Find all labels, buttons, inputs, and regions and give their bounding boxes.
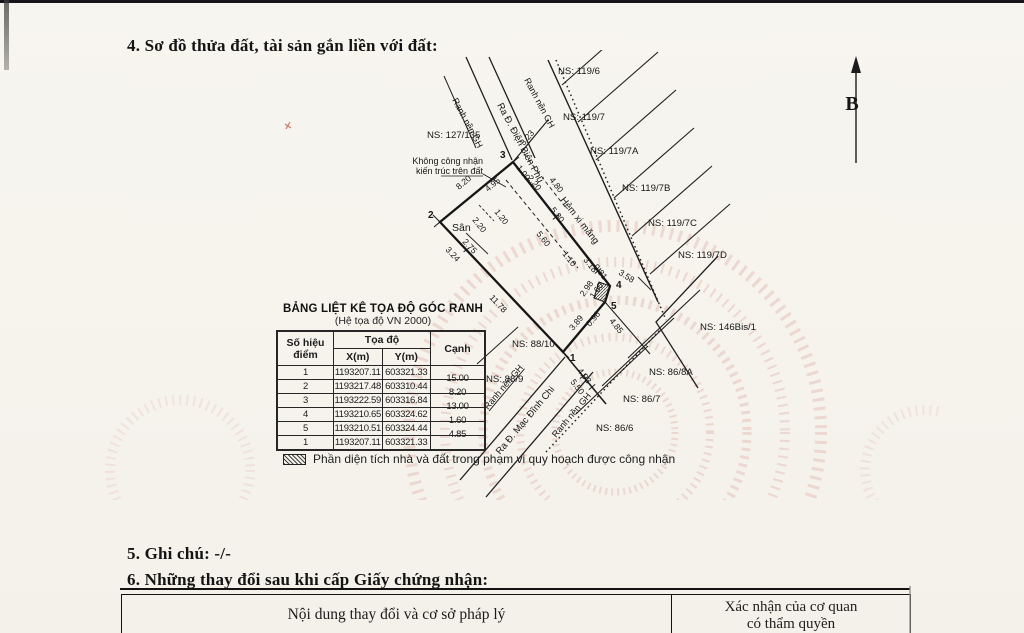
ns-label: NS: 119/7C — [648, 218, 697, 229]
ns-label: NS: 119/7D — [678, 250, 727, 261]
point-label: 4 — [616, 280, 622, 291]
ns-label: NS: 146Bis/1 — [700, 322, 756, 333]
legend-text: Phần diện tích nhà và đất trong phạm vi … — [313, 452, 675, 466]
ns-label: NS: 119/6 — [558, 66, 600, 77]
measurement-label: 2.75 — [461, 237, 480, 256]
col-edge-header: Cạnh — [431, 331, 486, 366]
section5-title: 5. Ghi chú: -/- — [127, 544, 231, 564]
measurement-label: 1.20 — [492, 207, 510, 227]
scan-top-edge — [0, 0, 1024, 3]
ns-label: NS: 86/8A — [649, 367, 693, 378]
coordinate-table-subtitle: (Hệ tọa độ VN 2000) — [276, 315, 490, 327]
col-x-header: X(m) — [334, 349, 383, 366]
alley-label: Hẻm xi măng — [558, 195, 601, 246]
coordinate-table-block: BẢNG LIỆT KÊ TỌA ĐỘ GÓC RANH (Hệ tọa độ … — [276, 303, 490, 451]
road-label-mac-dinh-chi: Ra Đ. Mạc Đĩnh Chi — [494, 385, 557, 457]
measurement-label: 4.80 — [547, 175, 565, 195]
col-coord-header: Tọa độ — [334, 331, 431, 349]
changes-table: Nội dung thay đổi và cơ sở pháp lý Xác n… — [121, 594, 911, 633]
col-y-header: Y(m) — [382, 349, 431, 366]
ns-label: NS: 119/7A — [590, 146, 639, 157]
coordinate-table-title: BẢNG LIỆT KÊ TỌA ĐỘ GÓC RANH — [276, 303, 490, 315]
hatch-swatch-icon — [283, 454, 306, 465]
point-label: 5 — [611, 301, 617, 312]
changes-col2-header: Xác nhận của cơ quan có thẩm quyền — [672, 595, 910, 633]
watermark-red-speck — [285, 122, 291, 129]
ns-label: NS: 86/6 — [596, 423, 633, 434]
boundary-label: Ranh nền GH — [522, 76, 557, 129]
measurement-label: 4.85 — [607, 316, 625, 336]
col-point-header: Số hiệu điểm — [277, 331, 334, 366]
coordinate-table: Số hiệu điểm Tọa độ Cạnh X(m) Y(m) 11193… — [276, 330, 486, 451]
ns-label: NS: 119/7B — [622, 183, 670, 194]
note-line1: Không công nhận — [412, 156, 483, 166]
point-label: 1 — [570, 353, 576, 364]
section6-title: 6. Những thay đổi sau khi cấp Giấy chứng… — [127, 570, 488, 590]
changes-col1-header: Nội dung thay đổi và cơ sở pháp lý — [122, 595, 672, 633]
certificate-page: 4. Sơ đồ thửa đất, tài sản gắn liền với … — [0, 0, 1024, 633]
north-arrowhead-icon — [851, 56, 861, 73]
scan-left-edge — [4, 0, 9, 70]
legend: Phần diện tích nhà và đất trong phạm vi … — [283, 452, 675, 466]
yard-label: Sân — [452, 222, 471, 234]
measurement-label: 0.96 — [584, 309, 603, 328]
boundary-label: Ranh nền GH — [450, 96, 485, 149]
ns-label: NS: 86/7 — [623, 394, 660, 405]
point-label: 2 — [428, 210, 434, 221]
scan-crease — [909, 586, 911, 633]
parcel-sketch: B — [100, 50, 940, 500]
table-row: 11193207.11603321.3315.00 — [277, 366, 485, 380]
measurement-label: 3.24 — [444, 245, 463, 264]
north-label: B — [845, 93, 858, 115]
measurement-label: 4.95 — [483, 175, 502, 194]
note-line2: kiến trúc trên đất — [416, 166, 484, 176]
point-label: 3 — [500, 150, 506, 161]
measurement-label: 2.20 — [470, 215, 488, 235]
ns-label: NS: 119/7 — [563, 112, 605, 123]
ns-label: NS: 88/10 — [512, 339, 555, 350]
section6-rule — [120, 588, 910, 590]
